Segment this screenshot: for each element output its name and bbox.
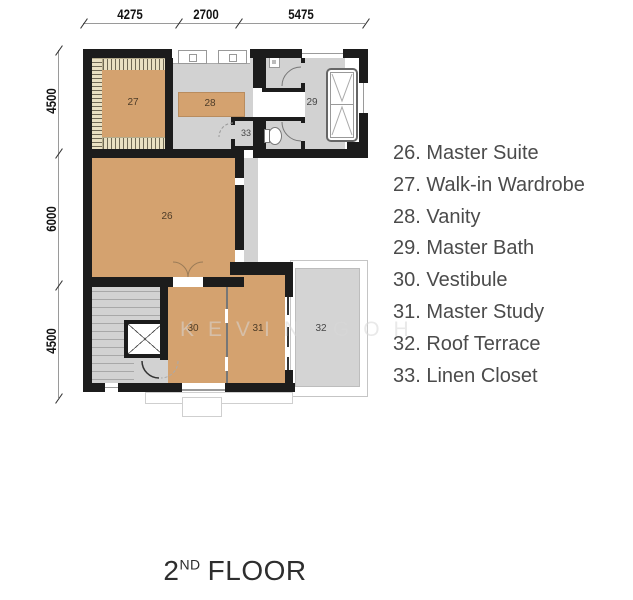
room-label-29: 29	[300, 97, 324, 108]
dimension-label: 6000	[43, 194, 59, 243]
double-door-arc	[188, 262, 203, 277]
dimension-label: 2700	[186, 6, 227, 22]
linen-door-arc	[219, 123, 233, 137]
floor-plan: 27 28 29 33 26 30 31 32	[83, 45, 368, 420]
bathtub-mark	[332, 107, 352, 135]
legend-item: 29. Master Bath	[393, 233, 585, 265]
stair-door-arc	[142, 361, 159, 378]
floor-title-number: 2	[163, 555, 179, 586]
room-label-28: 28	[198, 98, 222, 109]
room-label-33: 33	[234, 128, 258, 138]
double-door-arc	[173, 262, 188, 277]
floor-plan-page: 4275 2700 5475 4500 6000 4500	[0, 0, 633, 600]
legend-item: 33. Linen Closet	[393, 361, 585, 393]
room-label-26: 26	[155, 211, 179, 222]
floor-title-ordinal: ND	[179, 557, 200, 573]
dimension-label: 4275	[110, 6, 151, 22]
bathtub-mark	[332, 74, 352, 101]
legend: 26. Master Suite 27. Walk-in Wardrobe 28…	[393, 138, 585, 392]
dimension-tick	[55, 393, 63, 403]
floor-title-text: FLOOR	[208, 555, 307, 586]
dimension-label: 4500	[43, 76, 59, 125]
floor-title: 2NDFLOOR	[135, 555, 335, 587]
legend-item: 26. Master Suite	[393, 138, 585, 170]
vestibule-door-arc	[161, 361, 178, 378]
shower-door-arc	[282, 67, 301, 86]
legend-item: 28. Vanity	[393, 202, 585, 234]
wc-door-arc	[282, 122, 301, 141]
dimension-tick	[55, 148, 63, 158]
dimension-tick	[55, 280, 63, 290]
legend-item: 30. Vestibule	[393, 265, 585, 297]
legend-item: 27. Walk-in Wardrobe	[393, 170, 585, 202]
dimension-label: 5475	[281, 6, 322, 22]
dimension-tick	[55, 45, 63, 55]
dimension-label: 4500	[43, 316, 59, 365]
room-label-27: 27	[121, 97, 145, 108]
watermark: KEVIN GOH	[180, 318, 423, 342]
dimension-line-top	[83, 23, 365, 24]
